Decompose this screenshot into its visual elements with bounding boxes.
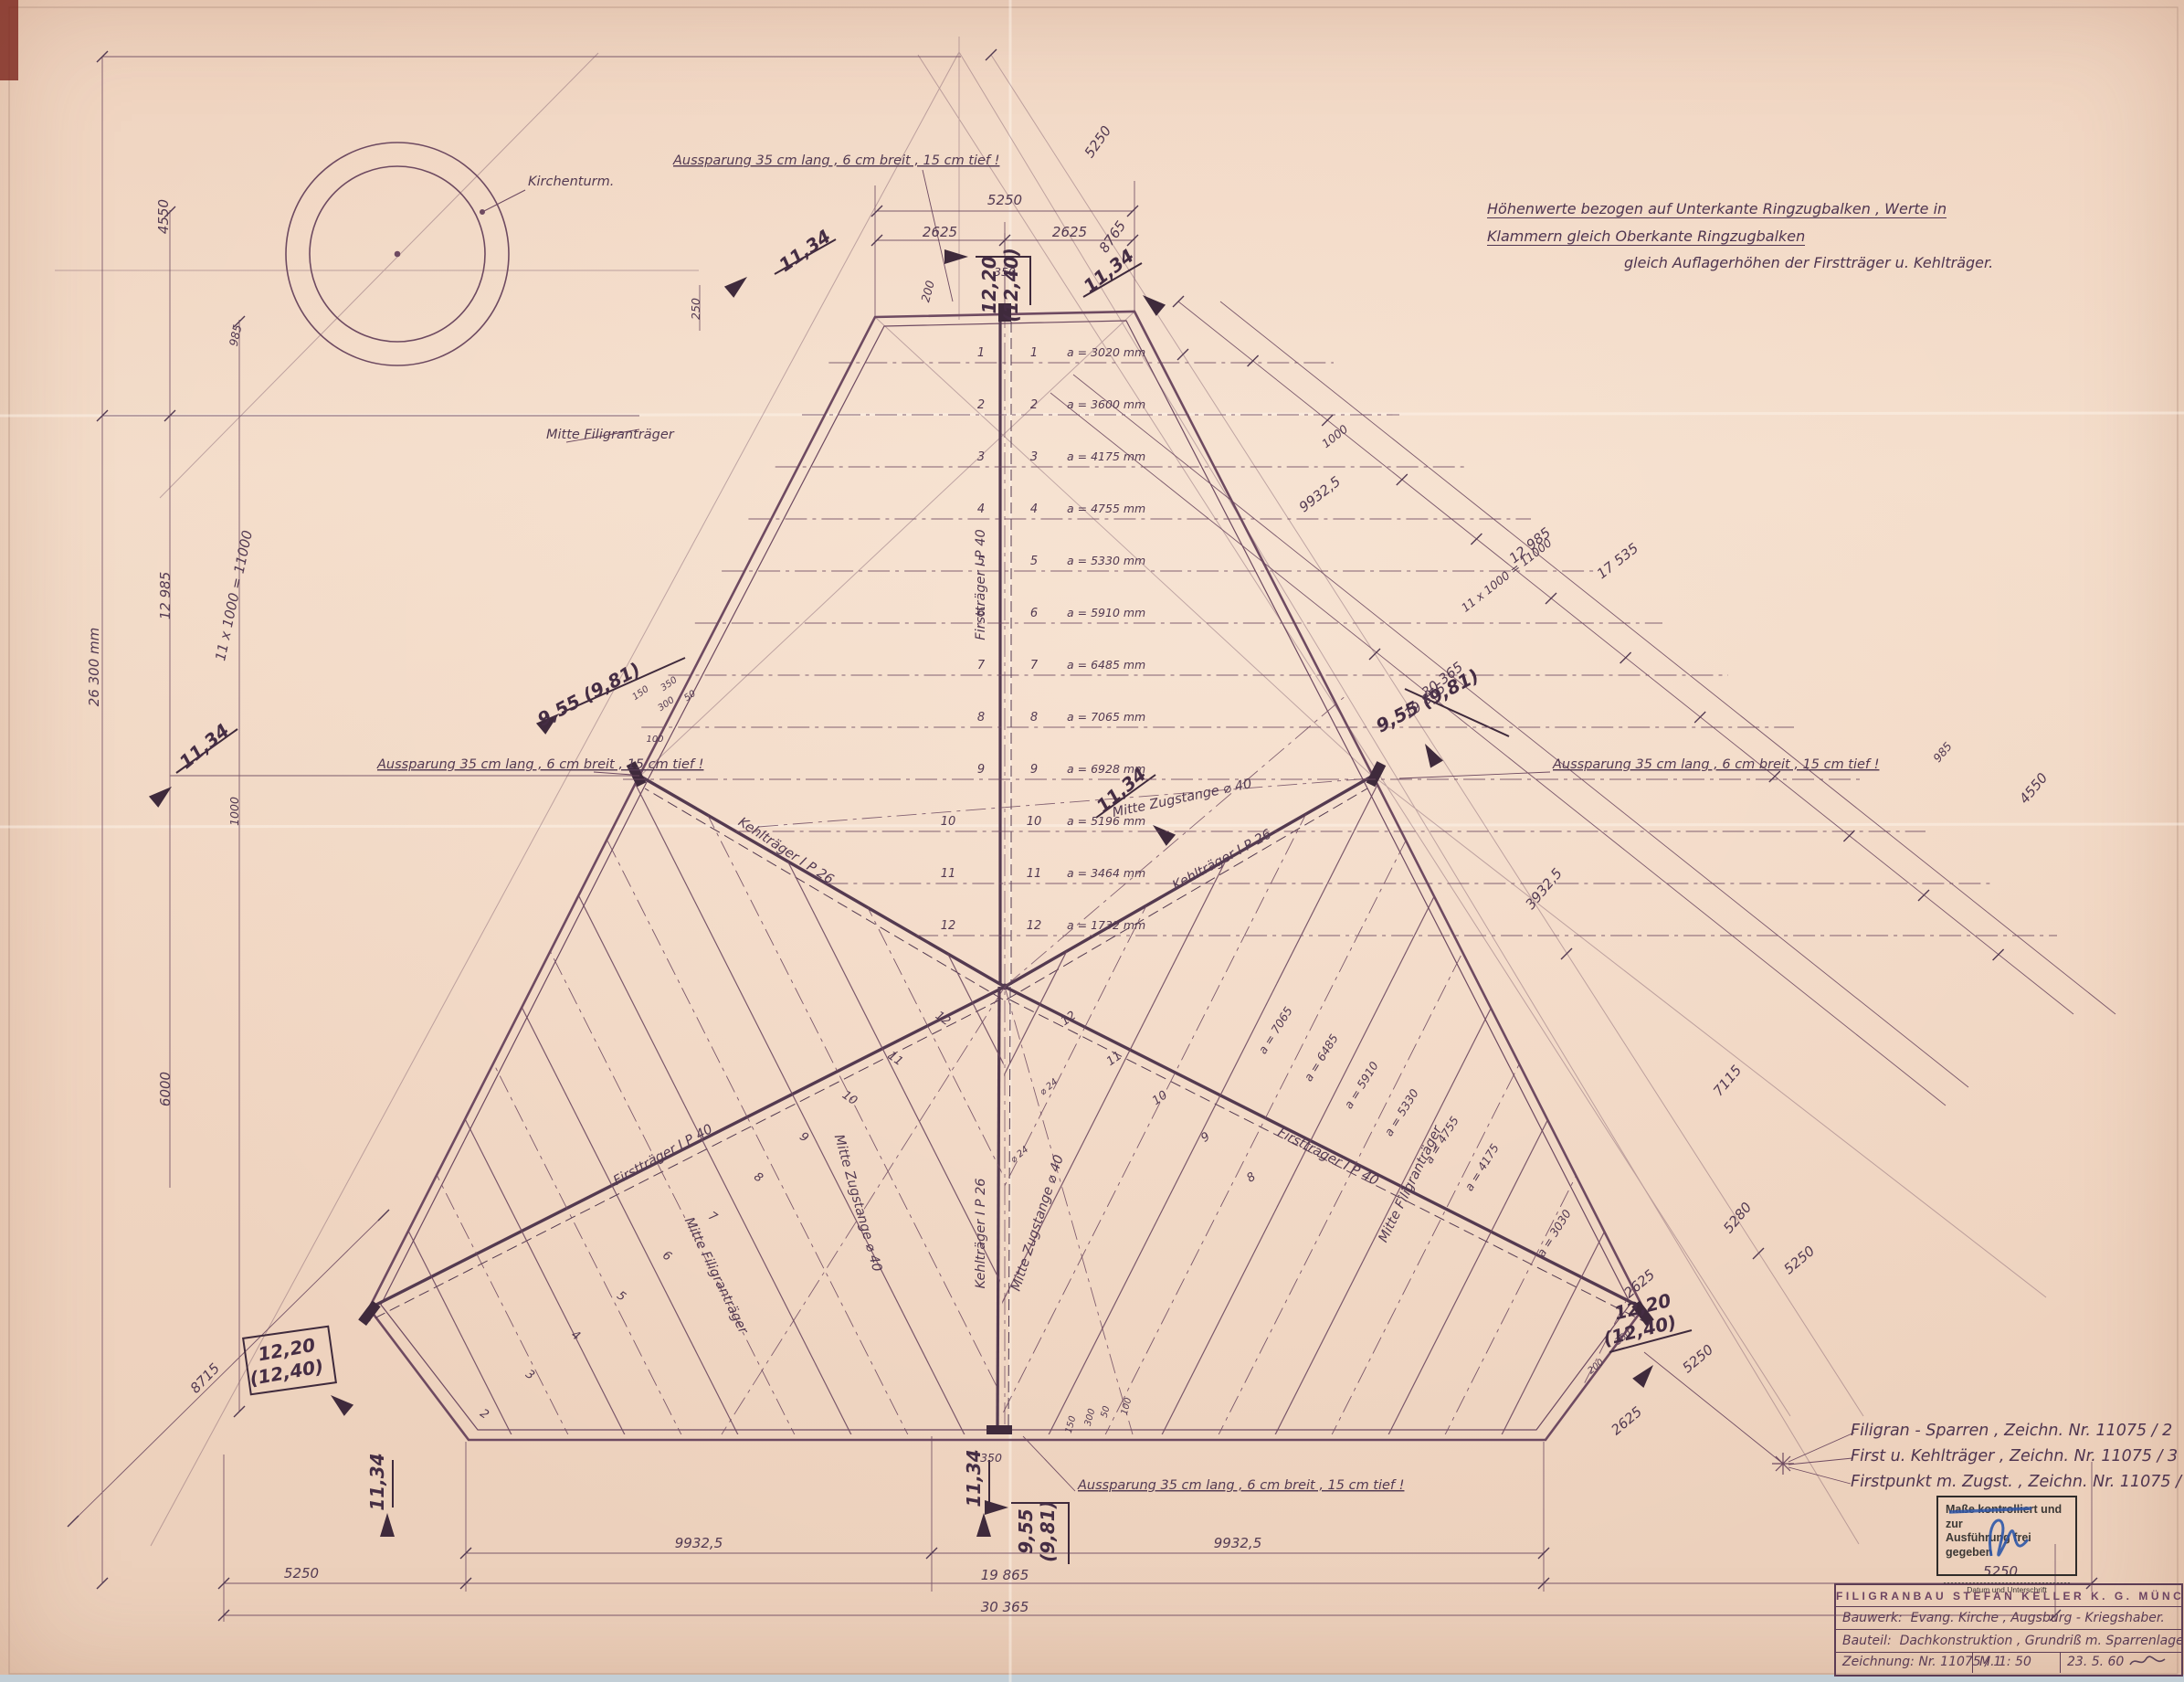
annotation-label: 2625 — [1052, 224, 1087, 240]
annotation-label: 5250 — [284, 1565, 319, 1582]
dim-chain-top — [700, 181, 1134, 331]
ref-leaders — [1644, 1352, 1854, 1484]
leader-lines — [566, 170, 1550, 1491]
annotation-label: a = 3020 mm — [1067, 345, 1145, 359]
annotation-label: a = 4755 mm — [1067, 502, 1145, 515]
annotation-label: 4 — [1030, 502, 1038, 516]
annotation-label: a = 5330 mm — [1067, 554, 1145, 567]
annotation-label: 11 — [941, 867, 956, 881]
ring-beam-inner — [381, 321, 1630, 1430]
annotation-label: 7 — [705, 1210, 720, 1225]
ref-line: Filigran - Sparren , Zeichn. Nr. 11075 /… — [1851, 1418, 2184, 1444]
annotation-label: 4 — [977, 502, 985, 516]
title-block: FILIGRANBAU STEFAN KELLER K. G. MÜNCHEN … — [1834, 1583, 2183, 1677]
annotation-label: 11 — [1027, 867, 1042, 881]
annotation-label: 19 865 — [981, 1567, 1029, 1583]
annotation-label: a = 3600 mm — [1067, 397, 1145, 411]
note-line1: Höhenwerte bezogen auf Unterkante Ringzu… — [1487, 200, 1947, 246]
annotation-label: 3 — [977, 450, 985, 464]
aussparung-notches — [358, 303, 1654, 1434]
annotation-label: Mitte Filigranträger — [546, 428, 675, 442]
drawing-line — [647, 694, 1039, 1471]
annotation-label: a = 3464 mm — [1067, 866, 1145, 880]
annotation-label: 9 — [1030, 763, 1038, 777]
dim-tick — [1248, 355, 1259, 366]
annotation-label: 2625 — [1608, 1403, 1645, 1438]
annotation-label: 5250 — [1081, 122, 1115, 161]
annotation-label: 12 — [933, 1009, 953, 1029]
annotation-label: 350 — [659, 675, 680, 693]
ref-line: Firstpunkt m. Zugst. , Zeichn. Nr. 11075… — [1851, 1469, 2184, 1495]
kirchenturm-circle — [286, 143, 509, 365]
datum-cell: 23. 5. 60 — [2061, 1653, 2181, 1673]
annotation-label: 9932,5 — [1296, 473, 1344, 516]
annotation-label: 26 300 mm — [86, 628, 102, 706]
annotation-label: 5250 — [1780, 1243, 1818, 1277]
annotation-label: 8 — [1244, 1170, 1258, 1186]
dim-tick — [1546, 593, 1556, 604]
annotation-label: 4550 — [2016, 769, 2051, 807]
annotation-label: 100 — [646, 735, 663, 745]
drawing-line — [533, 694, 926, 1471]
rafter-hatch-field — [804, 694, 2159, 1471]
annotation-label: 3 — [1030, 450, 1038, 464]
drawing-line — [590, 694, 983, 1471]
annotation-label: 5250 — [987, 192, 1022, 208]
annotation-label: Mitte Zugstange ⌀ 40 — [1009, 1153, 1067, 1293]
massstab: M. 1: 50 — [1973, 1653, 2061, 1673]
dim-tick — [1561, 948, 1572, 959]
drawing-line — [1427, 694, 1820, 1471]
annotation-label: 11 — [885, 1049, 905, 1069]
annotation-label: a = 3030 — [1534, 1207, 1573, 1259]
annotation-label: 985 — [1930, 739, 1955, 765]
annotation-label: 8 — [977, 711, 985, 725]
annotation-label: 7115 — [1710, 1062, 1745, 1099]
annotation-label: 1 — [977, 346, 985, 360]
drawing-line — [1257, 694, 1650, 1471]
annotation-label: 12,20 — [978, 256, 1000, 313]
annotation-label: Aussparung 35 cm lang , 6 cm breit , 15 … — [672, 153, 999, 168]
annotation-label: 6 — [1030, 607, 1038, 620]
annotation-label: 9,55 (9,81) — [533, 658, 644, 730]
drawing-line — [194, 694, 586, 1471]
dim-tick — [1173, 296, 1184, 307]
annotation-label: 9 — [1198, 1130, 1212, 1146]
zugstange-lines — [722, 694, 1370, 1434]
annotation-label: a = 5330 — [1381, 1086, 1420, 1138]
stamp-signature-scribble — [1938, 1497, 2075, 1574]
annotation-label: 8 — [1030, 711, 1038, 725]
annotation-label: 4 — [568, 1328, 582, 1344]
first-und-kehltraeger-beams — [369, 322, 1643, 1433]
dim-chain-left — [73, 57, 961, 1583]
datum: 23. 5. 60 — [2067, 1655, 2124, 1669]
annotation-label: a = 6485 — [1301, 1031, 1340, 1084]
annotation-label: 6000 — [157, 1072, 174, 1106]
annotation-label: Aussparung 35 cm lang , 6 cm breit , 15 … — [1077, 1478, 1404, 1493]
approval-stamp: Maße kontrolliert und zur Ausführung fre… — [1936, 1496, 2077, 1576]
annotation-label: 9 — [977, 763, 985, 777]
drawing-line — [307, 694, 700, 1471]
annotation-label: 200 — [918, 279, 937, 303]
annotation-label: 9932,5 — [1214, 1535, 1262, 1551]
annotation-label: 30 365 — [981, 1599, 1029, 1615]
annotation-label: 9 — [797, 1130, 810, 1146]
dim-tick — [1471, 534, 1482, 545]
annotation-label: Aussparung 35 cm lang , 6 cm breit , 15 … — [1552, 757, 1879, 772]
annotation-label: 9932,5 — [675, 1535, 723, 1551]
drawing-line — [137, 694, 530, 1471]
drawing-line — [1597, 694, 1989, 1471]
annotation-label: 50 — [682, 689, 698, 703]
annotation-label: 7 — [977, 659, 986, 672]
drawing-line — [1200, 694, 1593, 1471]
note-line2: gleich Auflagerhöhen der Firstträger u. … — [1624, 249, 2017, 277]
annotation-label: 5 — [1030, 555, 1038, 568]
dim-tick — [68, 1516, 79, 1527]
hoehenwerte-note: Höhenwerte bezogen auf Unterkante Ringzu… — [1487, 196, 2017, 277]
annotation-label: 150 — [631, 684, 651, 703]
annotation-label: 10 — [839, 1088, 860, 1108]
dim-tick — [378, 1210, 389, 1221]
dim-tick — [1177, 349, 1188, 360]
annotation-label: 11 x 1000 = 11000 — [1459, 535, 1555, 614]
dim-tick — [986, 49, 997, 60]
annotation-label: Aussparung 35 cm lang , 6 cm breit , 15 … — [376, 757, 703, 772]
annotation-label: 17 535 — [1594, 540, 1641, 583]
drawing-line — [873, 694, 1266, 1471]
annotation-label: 2 — [1030, 398, 1038, 412]
annotation-label: 2625 — [923, 224, 957, 240]
annotation-label: 8 — [751, 1170, 765, 1186]
annotation-label: 6 — [659, 1249, 673, 1264]
dim-tick — [1322, 415, 1333, 426]
dim-tick — [1397, 474, 1408, 485]
drawing-line — [703, 694, 1096, 1471]
ref-line: First u. Kehlträger , Zeichn. Nr. 11075 … — [1851, 1444, 2184, 1469]
annotation-label: 12 — [1027, 919, 1042, 933]
annotation-label: 12 — [941, 919, 956, 933]
annotation-label: 2 — [977, 398, 985, 412]
annotation-label: 11,34 — [775, 225, 835, 276]
annotation-label: a = 6485 mm — [1067, 658, 1145, 672]
bauwerk-label: Bauwerk: — [1842, 1611, 1903, 1625]
annotation-label: 11,34 — [366, 1453, 388, 1510]
drawing-line — [420, 694, 813, 1471]
annotation-label: 11,34 — [175, 719, 234, 773]
bauwerk-value: Evang. Kirche , Augsburg - Kriegshaber. — [1911, 1611, 2165, 1625]
annotation-label: 11 x 1000 = 11000 — [212, 529, 256, 662]
zeichnung-number: Zeichnung: Nr. 11075 / 1 — [1836, 1653, 1973, 1673]
annotation-label: 4550 — [155, 199, 172, 234]
annotation-label: 5 — [614, 1289, 628, 1305]
drawing-line — [1144, 694, 1536, 1471]
title-block-bottom-row: Zeichnung: Nr. 11075 / 1 M. 1: 50 23. 5.… — [1836, 1653, 2181, 1673]
annotation-label: a = 7065 mm — [1067, 710, 1145, 724]
annotation-label: 50 — [1100, 1405, 1113, 1419]
annotation-label: 300 — [1083, 1408, 1098, 1427]
drawing-reference-list: Filigran - Sparren , Zeichn. Nr. 11075 /… — [1851, 1418, 2184, 1495]
dim-chain-bottom — [224, 1436, 2092, 1622]
drawing-line — [477, 694, 870, 1471]
annotation-label: a = 4175 mm — [1067, 450, 1145, 463]
annotation-label: 5250 — [1679, 1341, 1716, 1376]
kirchenturm-leader — [480, 190, 526, 215]
annotation-label: 10 — [1150, 1088, 1170, 1108]
annotation-label: 5280 — [1720, 1199, 1755, 1236]
drawing-line — [974, 694, 1366, 1471]
annotation-label: 12 985 — [157, 572, 174, 620]
annotation-label: 100 — [1120, 1397, 1134, 1416]
bauteil-value: Dachkonstruktion , Grundriß m. Sparrenla… — [1900, 1634, 2181, 1648]
annotation-label: 7 — [1030, 659, 1039, 672]
annotation-label: Mitte Filigranträger — [681, 1215, 751, 1338]
annotation-label: 985 — [227, 323, 245, 348]
blueprint-sheet: 11a = 3020 mm22a = 3600 mm33a = 4175 mm4… — [0, 0, 2184, 1682]
annotation-label: 10 — [1027, 815, 1042, 829]
title-block-bauteil: Bauteil: Dachkonstruktion , Grundriß m. … — [1836, 1630, 2181, 1653]
annotation-label: ⌀ 24 — [1008, 1145, 1030, 1166]
scan-artifact — [0, 0, 18, 80]
annotation-label: (9,81) — [1037, 1500, 1059, 1562]
annotation-label: a = 5910 mm — [1067, 606, 1145, 619]
annotation-label: Kehlträger I P 26 — [974, 1178, 988, 1288]
annotation-label: ⌀ 24 — [1038, 1077, 1060, 1098]
drawing-line — [1483, 694, 1876, 1471]
annotation-label: a = 5910 — [1341, 1059, 1380, 1111]
annotation-label: Kirchenturm. — [528, 175, 614, 189]
dim-chain-right — [1050, 301, 2115, 1105]
drawing-line — [760, 694, 1153, 1471]
annotation-label: Firstträger I P 40 — [974, 529, 988, 640]
annotation-label: 250 — [689, 298, 702, 320]
annotation-label: Mitte Zugstange ⌀ 40 — [831, 1133, 884, 1274]
annotation-label: 150 — [1064, 1415, 1079, 1434]
annotation-label: 350 — [980, 1451, 1002, 1465]
annotation-label: 2 — [477, 1407, 491, 1423]
annotation-label: 1 — [1030, 346, 1038, 360]
title-block-bauwerk: Bauwerk: Evang. Kirche , Augsburg - Krie… — [1836, 1607, 2181, 1630]
annotation-label: (12,40) — [1000, 248, 1022, 323]
annotation-label: 1000 — [227, 797, 241, 826]
annotation-label: 3 — [522, 1368, 536, 1383]
bauteil-label: Bauteil: — [1842, 1634, 1892, 1648]
label-brackets — [176, 239, 1692, 1564]
annotation-label: 10 — [941, 815, 956, 829]
annotation-label: a = 7065 — [1255, 1004, 1294, 1056]
annotation-label: a = 4175 — [1461, 1141, 1501, 1193]
annotation-label: 9,55 — [1015, 1508, 1037, 1553]
title-block-company: FILIGRANBAU STEFAN KELLER K. G. MÜNCHEN — [1836, 1585, 2181, 1607]
title-signature-scribble — [2128, 1654, 2167, 1668]
annotation-label: 3932,5 — [1522, 865, 1566, 913]
ring-beam-outline — [369, 312, 1643, 1440]
dim-tick — [1753, 1248, 1764, 1259]
annotation-label: Firstträger I P 40 — [611, 1122, 715, 1189]
